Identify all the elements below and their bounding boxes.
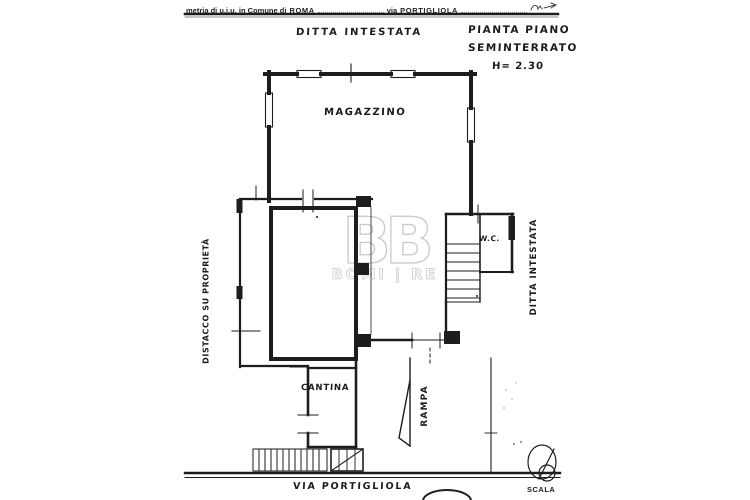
floor-plan-drawing: BB BOMI | RE xyxy=(0,0,750,500)
room-label-cellar: CANTINA xyxy=(301,383,350,393)
plan-title-line1: PIANTA PIANO xyxy=(468,24,571,36)
ramp-label: RAMPA xyxy=(420,385,430,427)
street-label-bottom: VIA PORTIGLIOLA xyxy=(293,481,413,492)
mid-bottom-wall xyxy=(356,302,460,364)
height-note: H= 2.30 xyxy=(492,61,544,72)
street-line xyxy=(185,473,560,478)
warehouse-walls xyxy=(265,72,475,214)
room-label-warehouse: MAGAZZINO xyxy=(324,107,407,118)
scale-label: SCALA xyxy=(527,485,555,494)
watermark-name-text: BOMI | RE xyxy=(332,267,439,283)
ramp-arrow xyxy=(399,358,410,446)
scanned-floor-plan-page: metria di u.i.u. in Comune di ROMA via P… xyxy=(0,0,750,500)
boundary-line xyxy=(485,358,517,473)
room-label-wc: W.C. xyxy=(479,234,500,243)
external-stairs xyxy=(253,449,363,471)
watermark-logo: BB BOMI | RE xyxy=(332,205,439,283)
setback-label-left: DISTACCO SU PROPRIETÀ xyxy=(202,238,211,364)
bottom-stamp-mark xyxy=(423,490,471,500)
central-room-walls xyxy=(271,196,371,359)
internal-stair xyxy=(446,244,480,302)
cellar-walls xyxy=(290,359,356,447)
plan-title-line2: SEMINTERRATO xyxy=(468,42,578,54)
owner-label-right: DITTA INTESTATA xyxy=(529,219,539,316)
owner-label-top: DITTA INTESTATA xyxy=(296,27,423,38)
header-rule xyxy=(185,14,558,17)
scale-doodle xyxy=(513,441,556,481)
